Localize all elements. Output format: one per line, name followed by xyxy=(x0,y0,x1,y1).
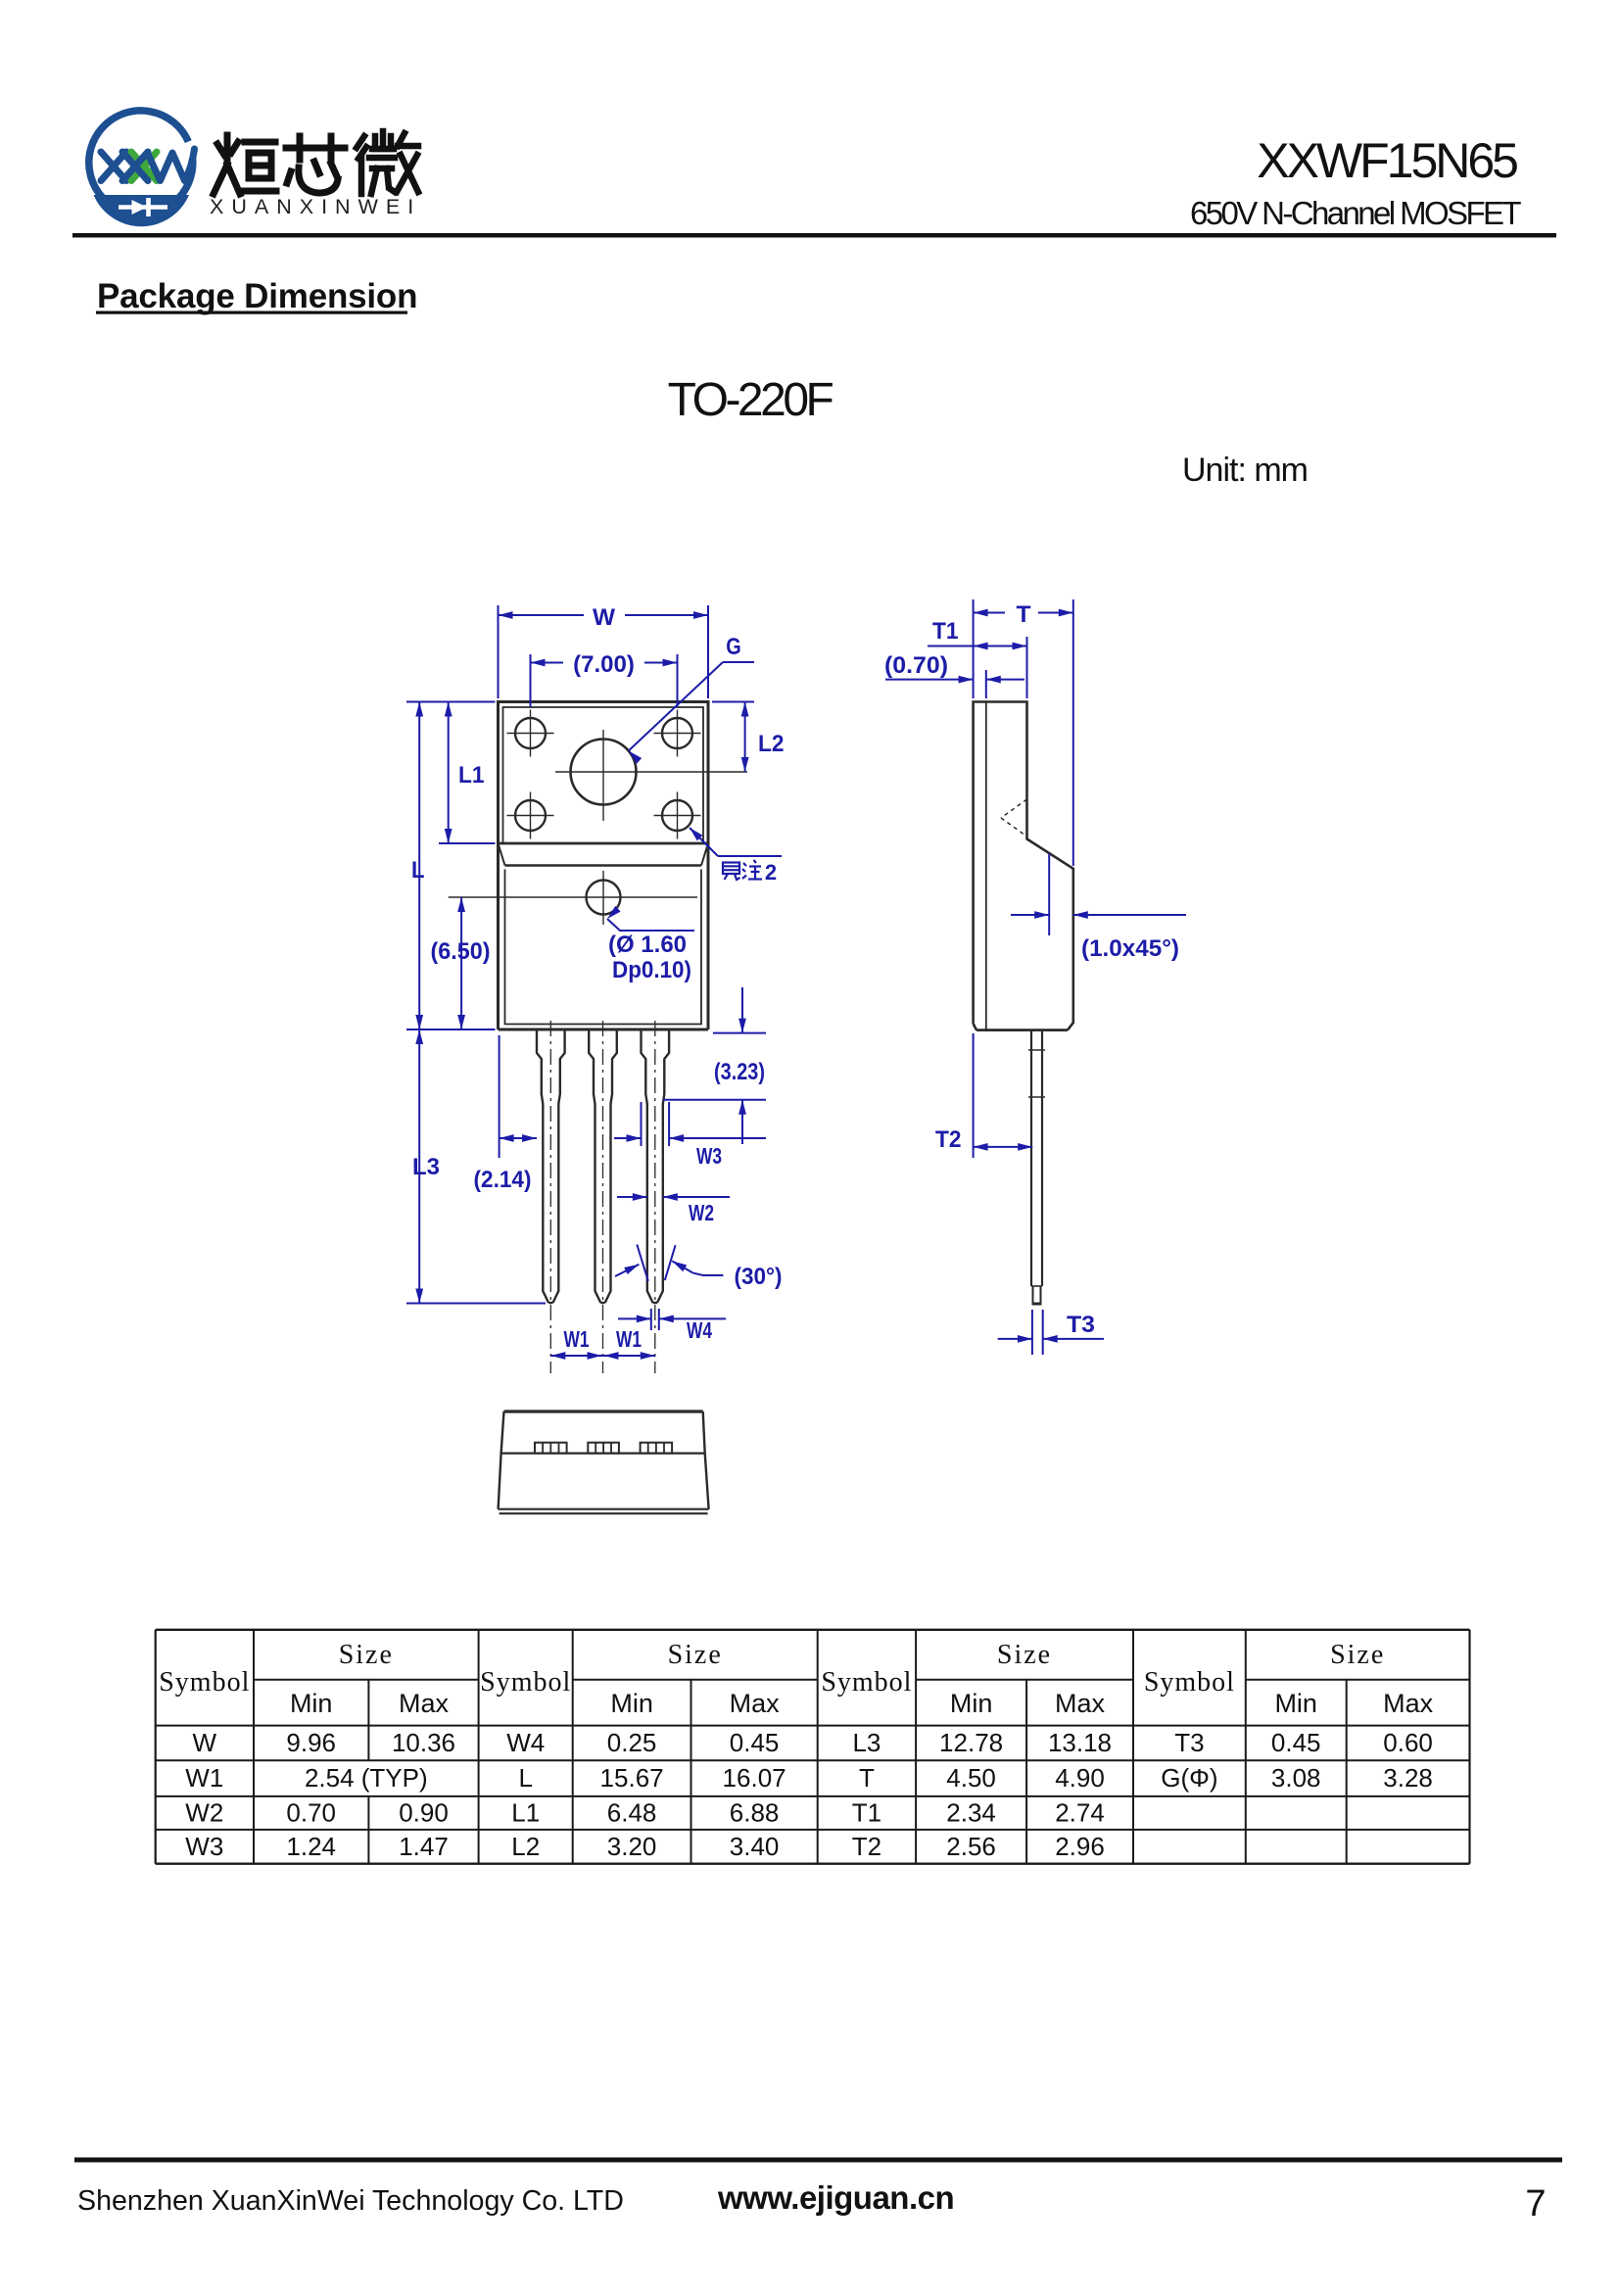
svg-text:T: T xyxy=(859,1763,875,1793)
svg-text:XUANXINWEI: XUANXINWEI xyxy=(210,195,421,218)
svg-text:Symbol: Symbol xyxy=(159,1667,250,1698)
svg-text:0.90: 0.90 xyxy=(399,1797,449,1827)
svg-text:W: W xyxy=(593,604,615,631)
svg-text:0.70: 0.70 xyxy=(286,1797,336,1827)
svg-text:L1: L1 xyxy=(458,762,485,789)
svg-text:4.90: 4.90 xyxy=(1055,1763,1105,1793)
svg-text:Size: Size xyxy=(997,1640,1052,1670)
svg-text:Min: Min xyxy=(950,1689,993,1718)
svg-text:Size: Size xyxy=(339,1640,394,1670)
svg-text:Max: Max xyxy=(730,1689,781,1718)
svg-text:L: L xyxy=(518,1763,532,1793)
svg-text:Dp0.10): Dp0.10) xyxy=(612,957,691,983)
svg-text:TO-220F: TO-220F xyxy=(668,374,833,426)
svg-text:(7.00): (7.00) xyxy=(573,651,635,678)
svg-text:L1: L1 xyxy=(511,1797,540,1827)
svg-text:L3: L3 xyxy=(412,1154,440,1180)
svg-text:0.60: 0.60 xyxy=(1383,1728,1433,1757)
svg-text:0.45: 0.45 xyxy=(1271,1728,1321,1757)
svg-text:Symbol: Symbol xyxy=(480,1667,571,1698)
svg-text:W4: W4 xyxy=(506,1728,545,1757)
svg-text:T3: T3 xyxy=(1174,1728,1204,1757)
svg-text:W2: W2 xyxy=(185,1797,223,1827)
svg-text:1.47: 1.47 xyxy=(399,1832,449,1861)
svg-text:10.36: 10.36 xyxy=(392,1728,455,1757)
svg-text:0.45: 0.45 xyxy=(730,1728,780,1757)
svg-text:Unit: mm: Unit: mm xyxy=(1182,452,1308,489)
svg-text:2.56: 2.56 xyxy=(946,1832,996,1861)
svg-text:(6.50): (6.50) xyxy=(431,938,491,965)
svg-text:W3: W3 xyxy=(696,1143,722,1169)
svg-text:(2.14): (2.14) xyxy=(474,1167,532,1193)
svg-text:W1: W1 xyxy=(185,1763,223,1793)
svg-text:Symbol: Symbol xyxy=(821,1667,912,1698)
svg-text:3.08: 3.08 xyxy=(1271,1763,1321,1793)
svg-text:L2: L2 xyxy=(758,731,785,757)
svg-text:W3: W3 xyxy=(185,1832,223,1861)
svg-text:(Ø 1.60: (Ø 1.60 xyxy=(608,932,687,958)
svg-text:T2: T2 xyxy=(935,1126,962,1153)
svg-text:T1: T1 xyxy=(852,1797,881,1827)
svg-text:L3: L3 xyxy=(852,1728,881,1757)
svg-text:Max: Max xyxy=(1383,1689,1434,1718)
svg-text:2.54 (TYP): 2.54 (TYP) xyxy=(305,1763,428,1793)
svg-text:T: T xyxy=(1017,601,1031,628)
svg-text:0.25: 0.25 xyxy=(607,1728,657,1757)
svg-text:G(Φ): G(Φ) xyxy=(1161,1763,1217,1793)
svg-text:2.74: 2.74 xyxy=(1055,1797,1105,1827)
svg-text:XXWF15N65: XXWF15N65 xyxy=(1257,133,1517,188)
svg-text:6.88: 6.88 xyxy=(730,1797,780,1827)
svg-text:9.96: 9.96 xyxy=(286,1728,336,1757)
svg-text:W1: W1 xyxy=(564,1326,590,1352)
svg-text:Min: Min xyxy=(610,1689,653,1718)
svg-text:T1: T1 xyxy=(932,618,959,645)
svg-text:Max: Max xyxy=(399,1689,450,1718)
svg-text:13.18: 13.18 xyxy=(1048,1728,1112,1757)
svg-text:7: 7 xyxy=(1525,2183,1546,2224)
svg-text:W4: W4 xyxy=(687,1317,712,1343)
svg-text:(0.70): (0.70) xyxy=(884,652,948,679)
svg-text:W2: W2 xyxy=(689,1200,714,1225)
svg-text:www.ejiguan.cn: www.ejiguan.cn xyxy=(717,2179,954,2216)
svg-text:L2: L2 xyxy=(511,1832,540,1861)
svg-text:3.20: 3.20 xyxy=(607,1832,657,1861)
svg-text:Size: Size xyxy=(1330,1640,1385,1670)
svg-text:W: W xyxy=(193,1728,217,1757)
svg-text:(30°): (30°) xyxy=(735,1264,783,1290)
svg-text:Package Dimension: Package Dimension xyxy=(97,277,417,315)
svg-text:Min: Min xyxy=(290,1689,333,1718)
svg-text:3.40: 3.40 xyxy=(730,1832,780,1861)
svg-text:W1: W1 xyxy=(616,1326,642,1352)
svg-text:15.67: 15.67 xyxy=(600,1763,664,1793)
svg-text:650V N-Channel MOSFET: 650V N-Channel MOSFET xyxy=(1190,195,1521,231)
svg-text:(3.23): (3.23) xyxy=(714,1059,765,1085)
svg-text:Max: Max xyxy=(1055,1689,1106,1718)
svg-text:Shenzhen XuanXinWei Technology: Shenzhen XuanXinWei Technology Co. LTD xyxy=(77,2185,624,2217)
svg-text:G: G xyxy=(726,634,741,660)
svg-text:16.07: 16.07 xyxy=(723,1763,786,1793)
svg-text:T3: T3 xyxy=(1067,1312,1095,1338)
svg-text:6.48: 6.48 xyxy=(607,1797,657,1827)
svg-text:T2: T2 xyxy=(852,1832,881,1861)
svg-text:3.28: 3.28 xyxy=(1383,1763,1433,1793)
svg-text:(1.0x45°): (1.0x45°) xyxy=(1081,935,1179,962)
svg-text:2.96: 2.96 xyxy=(1055,1832,1105,1861)
svg-text:12.78: 12.78 xyxy=(939,1728,1003,1757)
svg-text:L: L xyxy=(411,857,425,884)
svg-text:Size: Size xyxy=(668,1640,723,1670)
svg-text:2: 2 xyxy=(765,860,777,885)
svg-text:2.34: 2.34 xyxy=(946,1797,996,1827)
svg-text:Symbol: Symbol xyxy=(1144,1667,1235,1698)
svg-text:Min: Min xyxy=(1274,1689,1317,1718)
svg-text:4.50: 4.50 xyxy=(946,1763,996,1793)
svg-text:1.24: 1.24 xyxy=(286,1832,336,1861)
